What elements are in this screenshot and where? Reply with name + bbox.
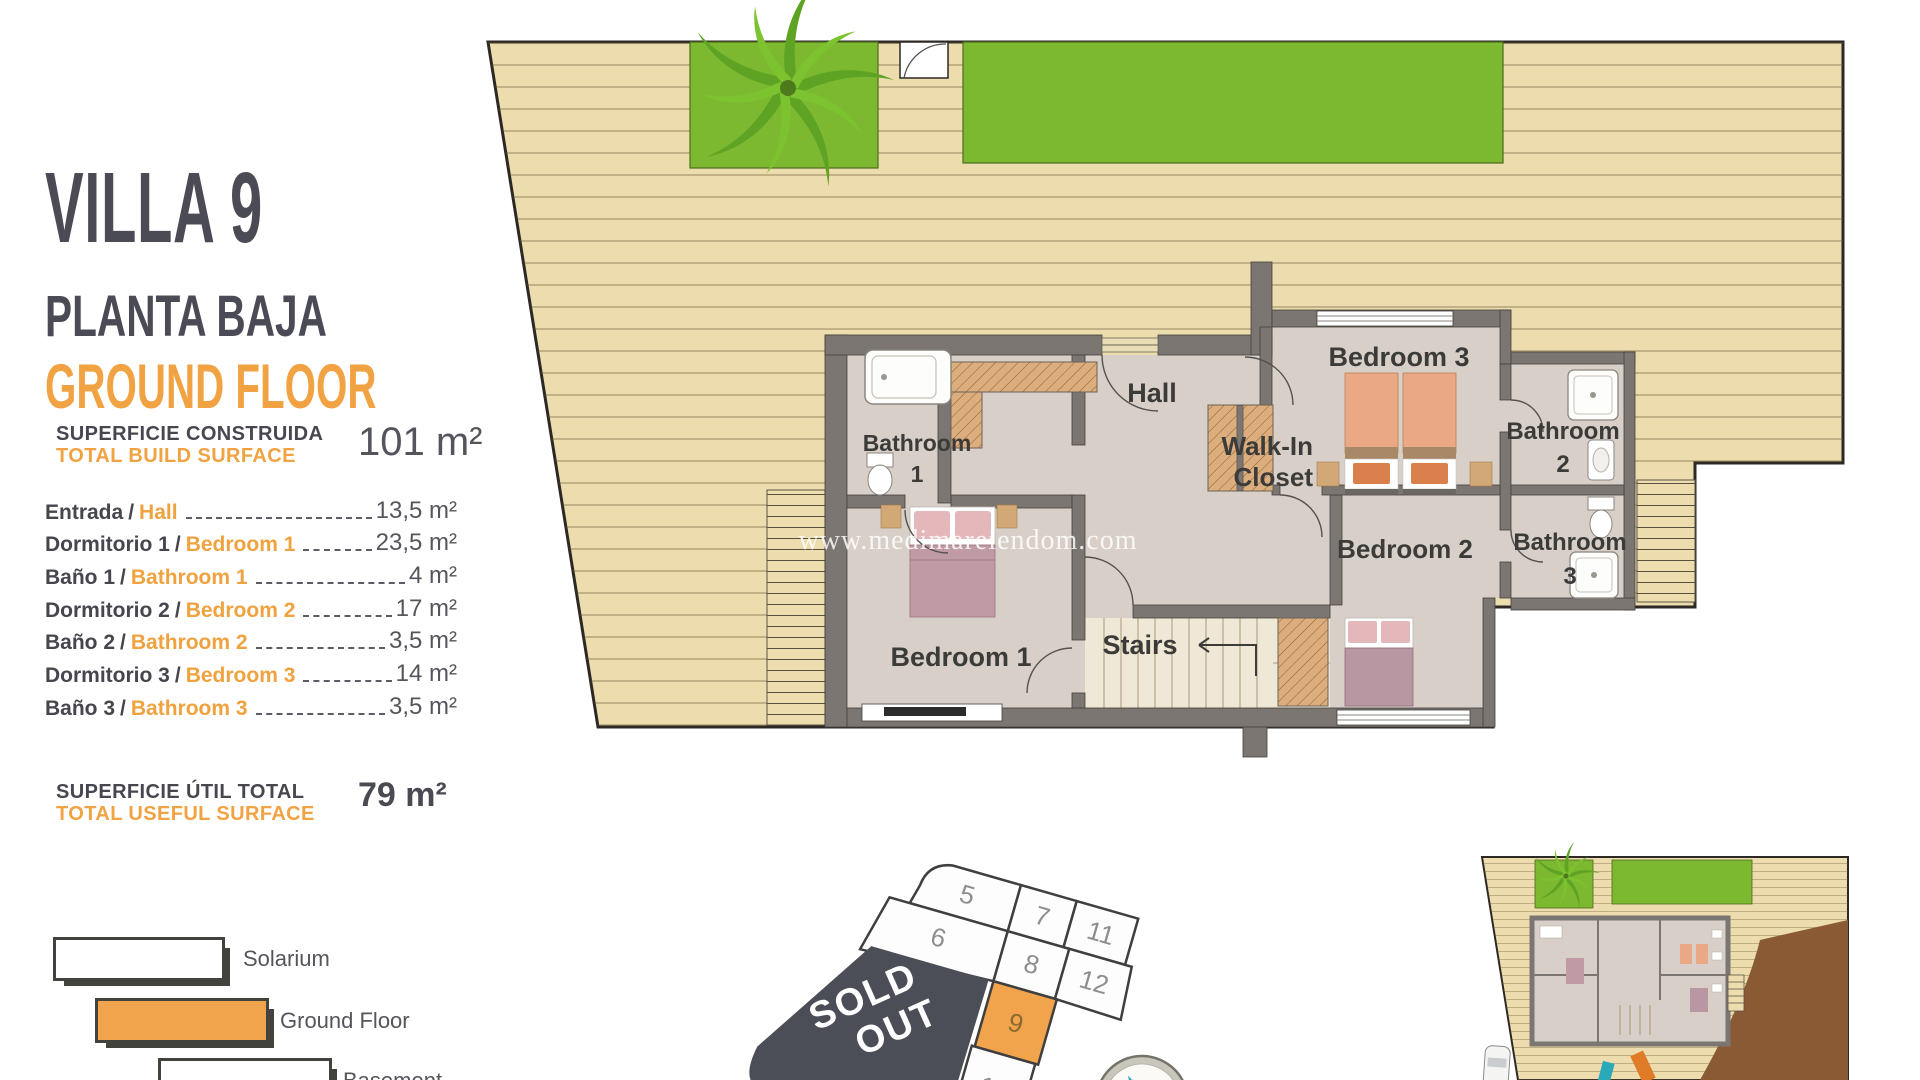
- built-surface-label-en: TOTAL BUILD SURFACE: [56, 446, 296, 466]
- room-row-bathroom2: Baño 2 / Bathroom 2 3,5 m²: [45, 623, 457, 656]
- label-bedroom2: Bedroom 2: [1337, 534, 1473, 564]
- label-bathroom1-num: 1: [911, 461, 924, 487]
- room-label-en: Bathroom 3: [131, 697, 248, 721]
- toilet-bathroom1: [867, 453, 893, 495]
- label-bathroom2: Bathroom: [1506, 418, 1619, 445]
- room-area-value: 4 m²: [409, 562, 457, 590]
- legend-swatch-ground-floor: [95, 998, 269, 1043]
- label-walkin-1: Walk-In: [1222, 431, 1313, 461]
- subtitle-es: PLANTA BAJA: [45, 288, 327, 346]
- window-bedroom3: [1317, 311, 1453, 326]
- room-row-bedroom2: Dormitorio 2 / Bedroom 2 17 m²: [45, 590, 457, 623]
- room-label-en: Hall: [139, 501, 178, 525]
- dotted-leader: [303, 680, 391, 682]
- room-row-hall: Entrada / Hall 13,5 m²: [45, 492, 457, 525]
- room-area-value: 3,5 m²: [389, 693, 457, 721]
- label-bathroom3: Bathroom: [1513, 529, 1626, 556]
- room-row-bathroom1: Baño 1 / Bathroom 1 4 m²: [45, 557, 457, 590]
- label-hall: Hall: [1127, 378, 1177, 408]
- useful-surface-label-en: TOTAL USEFUL SURFACE: [56, 804, 315, 824]
- dotted-leader: [303, 549, 371, 551]
- room-label-es: Baño 1: [45, 566, 115, 590]
- mini-site-overview: [1482, 841, 1848, 1080]
- label-bedroom3: Bedroom 3: [1328, 342, 1469, 372]
- room-label-es: Baño 3: [45, 697, 115, 721]
- site-plan: 5 7 11 6 8 12 9 10 SOLD OUT: [744, 827, 1148, 1080]
- useful-surface-value: 79 m²: [358, 778, 447, 812]
- room-label-en: Bathroom 2: [131, 631, 248, 655]
- room-row-bathroom3: Baño 3 / Bathroom 3 3,5 m²: [45, 688, 457, 721]
- room-area-value: 13,5 m²: [376, 497, 457, 525]
- page-title: VILLA 9: [45, 158, 263, 258]
- dotted-leader: [256, 647, 385, 649]
- room-area-value: 14 m²: [396, 660, 457, 688]
- compass-icon: [1080, 1040, 1204, 1080]
- tv-bench: [862, 704, 1002, 721]
- dotted-leader: [256, 582, 405, 584]
- deck-steps-right: [1637, 480, 1695, 602]
- room-row-bedroom3: Dormitorio 3 / Bedroom 3 14 m²: [45, 655, 457, 688]
- room-label-es: Dormitorio 3: [45, 664, 170, 688]
- label-walkin-2: Closet: [1234, 462, 1314, 492]
- legend-swatch-solarium: [53, 937, 225, 981]
- legend-label-solarium: Solarium: [243, 946, 330, 972]
- built-surface-value: 101 m²: [358, 422, 483, 462]
- legend-swatch-basement: [158, 1058, 332, 1080]
- mini-car: [1482, 1045, 1510, 1080]
- bed-bedroom3-right: [1403, 373, 1456, 494]
- dotted-leader: [256, 713, 385, 715]
- room-label-en: Bedroom 1: [186, 533, 296, 557]
- label-bedroom1: Bedroom 1: [890, 642, 1031, 672]
- watermark: www.medimareiendom.com: [799, 525, 1138, 556]
- window-bedroom2: [1337, 710, 1470, 725]
- label-stairs: Stairs: [1102, 630, 1177, 660]
- shower-bathroom3: [1570, 552, 1618, 598]
- built-surface-label-es: SUPERFICIE CONSTRUIDA: [56, 424, 323, 444]
- label-bathroom1: Bathroom: [863, 430, 972, 456]
- nightstand: [1470, 462, 1492, 486]
- label-bathroom2-num: 2: [1556, 451, 1569, 478]
- room-label-es: Baño 2: [45, 631, 115, 655]
- bed-bedroom2: [1345, 618, 1413, 706]
- room-list: Entrada / Hall 13,5 m² Dormitorio 1 / Be…: [45, 492, 457, 721]
- room-label-en: Bathroom 1: [131, 566, 248, 590]
- room-label-es: Entrada: [45, 501, 123, 525]
- bed-bedroom3-left: [1345, 373, 1398, 494]
- legend-label-ground-floor: Ground Floor: [280, 1008, 410, 1034]
- room-area-value: 23,5 m²: [376, 529, 457, 557]
- shower-bathroom2: [1568, 370, 1618, 420]
- mini-ext-stairs: [1728, 975, 1744, 1011]
- page: Hall Bathroom 1 Walk-In Closet Bedroom 3…: [0, 0, 1920, 1080]
- dotted-leader: [186, 517, 372, 519]
- legend-label-basement: Basement: [343, 1068, 442, 1080]
- grass-patch-large: [963, 42, 1503, 163]
- room-label-es: Dormitorio 2: [45, 599, 170, 623]
- mini-house: [1532, 918, 1728, 1044]
- entrance-gate: [900, 42, 948, 78]
- subtitle-en: GROUND FLOOR: [45, 356, 377, 419]
- room-label-en: Bedroom 3: [186, 664, 296, 688]
- room-label-es: Dormitorio 1: [45, 533, 170, 557]
- dotted-leader: [303, 615, 391, 617]
- label-bathroom3-num: 3: [1563, 563, 1576, 590]
- nightstand: [1317, 462, 1339, 486]
- useful-surface-label-es: SUPERFICIE ÚTIL TOTAL: [56, 782, 304, 802]
- sink-bathroom2: [1588, 440, 1614, 480]
- room-area-value: 17 m²: [396, 595, 457, 623]
- room-row-bedroom1: Dormitorio 1 / Bedroom 1 23,5 m²: [45, 525, 457, 558]
- room-area-value: 3,5 m²: [389, 627, 457, 655]
- bathtub: [865, 350, 951, 404]
- room-label-en: Bedroom 2: [186, 599, 296, 623]
